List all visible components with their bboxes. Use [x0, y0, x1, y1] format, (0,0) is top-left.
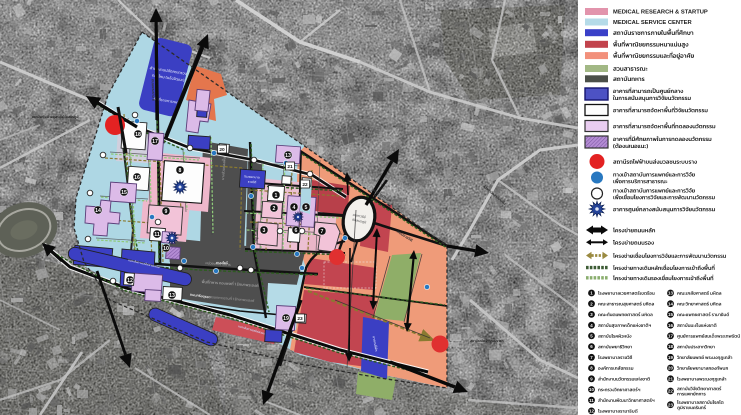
svg-text:13: 13 — [285, 153, 291, 159]
svg-text:14: 14 — [95, 208, 101, 214]
svg-text:2: 2 — [273, 206, 276, 212]
svg-text:10: 10 — [589, 387, 594, 392]
svg-text:5: 5 — [305, 205, 308, 211]
svg-text:20: 20 — [668, 366, 673, 371]
svg-text:23: 23 — [668, 402, 673, 407]
svg-text:3: 3 — [263, 228, 266, 234]
svg-text:16: 16 — [134, 175, 140, 181]
svg-text:19: 19 — [668, 355, 673, 360]
svg-text:12: 12 — [127, 278, 133, 284]
svg-text:21: 21 — [668, 376, 673, 381]
svg-text:15: 15 — [668, 312, 673, 317]
svg-text:23: 23 — [297, 316, 303, 322]
svg-text:20: 20 — [219, 147, 225, 153]
svg-text:MEDICAL RESEARCH & STARTUP: MEDICAL RESEARCH & STARTUP — [613, 10, 708, 16]
svg-text:15: 15 — [121, 190, 127, 196]
svg-text:18: 18 — [135, 132, 141, 138]
svg-text:12: 12 — [589, 409, 594, 414]
svg-text:9: 9 — [165, 209, 168, 215]
svg-text:11: 11 — [154, 232, 160, 238]
svg-text:17: 17 — [152, 139, 158, 145]
svg-text:22: 22 — [302, 182, 308, 188]
svg-text:7: 7 — [321, 229, 324, 235]
svg-text:6: 6 — [295, 228, 298, 234]
svg-text:13: 13 — [169, 293, 175, 299]
svg-text:14: 14 — [668, 301, 673, 306]
svg-text:4: 4 — [293, 205, 296, 211]
svg-text:11: 11 — [589, 398, 594, 403]
svg-text:22: 22 — [668, 389, 673, 394]
svg-text:17: 17 — [668, 334, 673, 339]
svg-text:16: 16 — [668, 323, 673, 328]
svg-text:18: 18 — [668, 344, 673, 349]
svg-text:MEDICAL SERVICE CENTER: MEDICAL SERVICE CENTER — [613, 20, 693, 26]
svg-text:21: 21 — [287, 164, 293, 170]
svg-text:19: 19 — [283, 316, 289, 322]
svg-text:8: 8 — [179, 168, 182, 174]
svg-text:1: 1 — [275, 193, 278, 199]
svg-text:10: 10 — [163, 246, 169, 252]
svg-text:13: 13 — [668, 291, 673, 296]
